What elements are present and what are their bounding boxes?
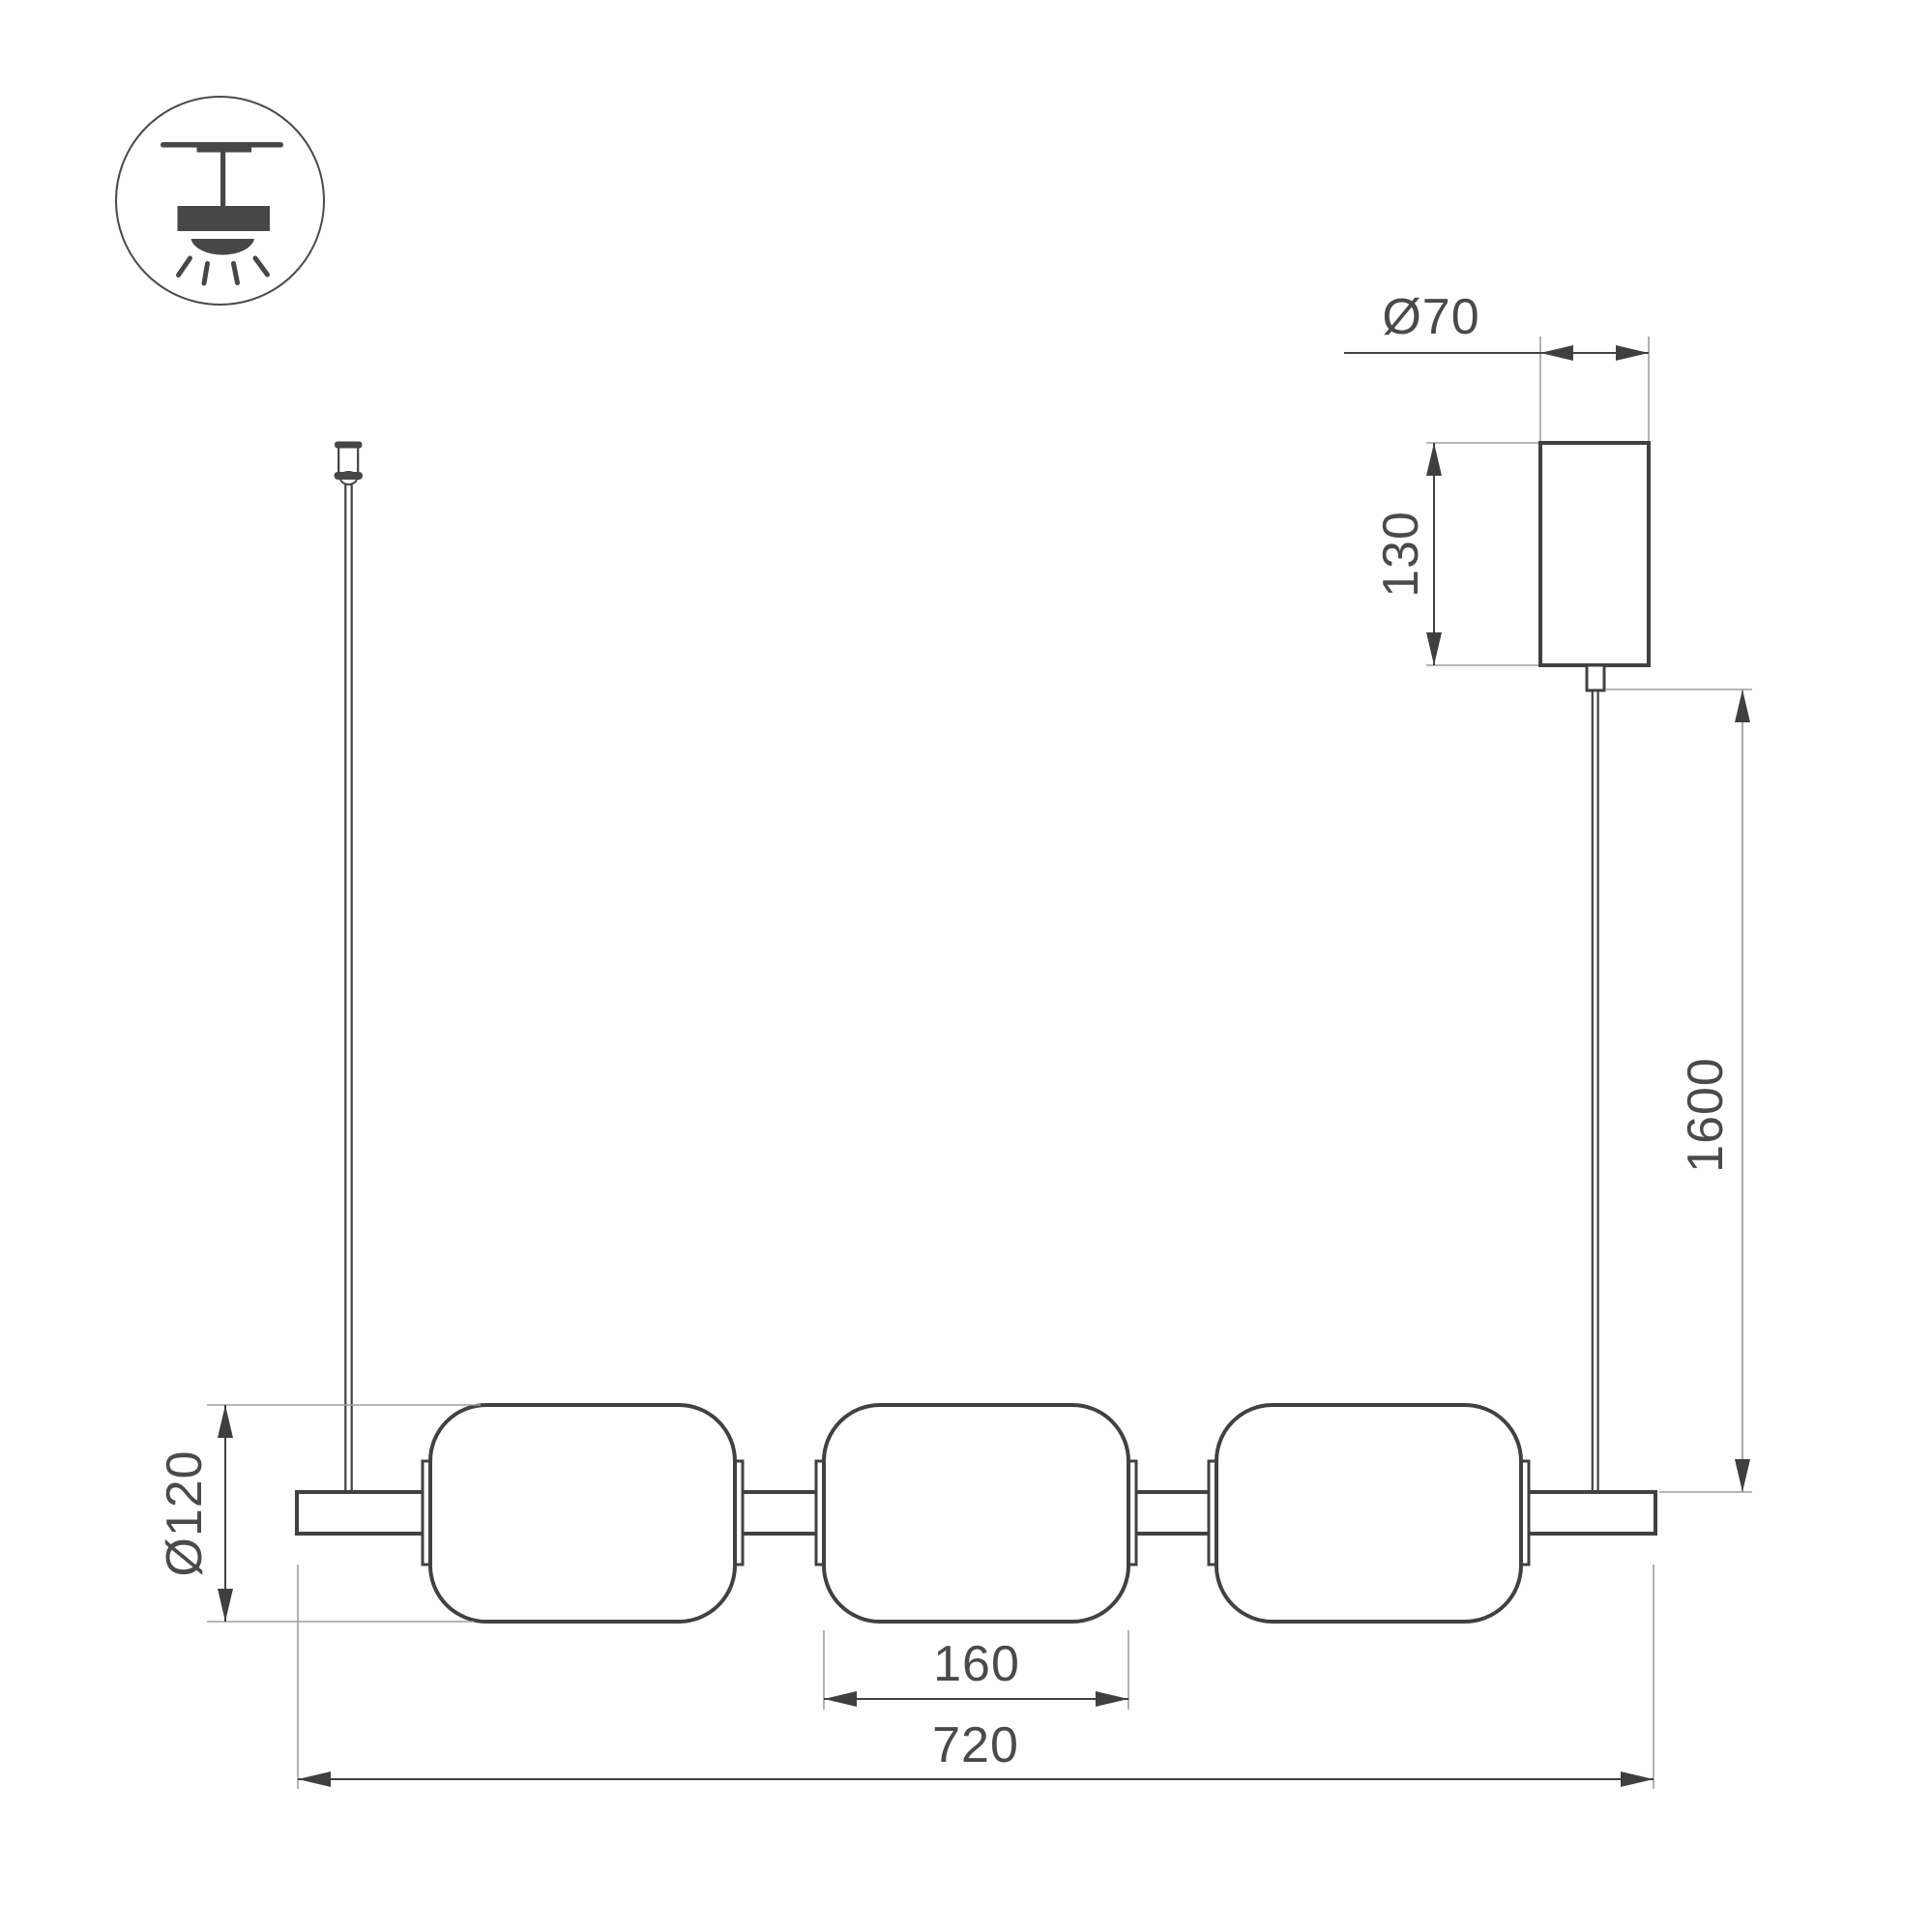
label-suspension-length: 1600 — [1678, 1057, 1734, 1173]
ceiling-canopy — [1540, 443, 1649, 665]
shade-3 — [1216, 1405, 1521, 1622]
fixture-drawing — [297, 442, 1655, 1623]
dim-shade-width: 160 — [824, 1630, 1128, 1710]
label-shade-diameter: Ø120 — [157, 1449, 213, 1576]
left-suspension-rod — [335, 442, 364, 1495]
label-canopy-diameter: Ø70 — [1382, 289, 1479, 345]
label-fixture-length: 720 — [932, 1717, 1019, 1773]
label-shade-width: 160 — [933, 1636, 1020, 1692]
cable-gland — [1587, 665, 1604, 690]
shade-1 — [430, 1405, 735, 1622]
icon-pendant-rod — [220, 151, 225, 207]
dim-suspension-length: 1600 — [1606, 689, 1752, 1492]
right-suspension-cable — [1593, 688, 1598, 1494]
lamp-shades — [430, 1405, 1521, 1622]
dim-canopy-height: 130 — [1373, 443, 1538, 665]
technical-drawing-page: Ø70 130 1600 Ø120 — [0, 0, 1932, 1932]
icon-lamp-body — [178, 206, 271, 231]
rod-fitting-top-cap — [335, 442, 363, 449]
icon-circle-border — [116, 97, 324, 305]
rod-fitting-flange — [335, 472, 364, 480]
shade-2 — [824, 1405, 1128, 1622]
dim-canopy-diameter: Ø70 — [1344, 289, 1649, 441]
ceiling-pendant-mount-icon — [116, 97, 324, 305]
label-canopy-height: 130 — [1373, 511, 1429, 598]
drawing-canvas: Ø70 130 1600 Ø120 — [0, 0, 1932, 1932]
